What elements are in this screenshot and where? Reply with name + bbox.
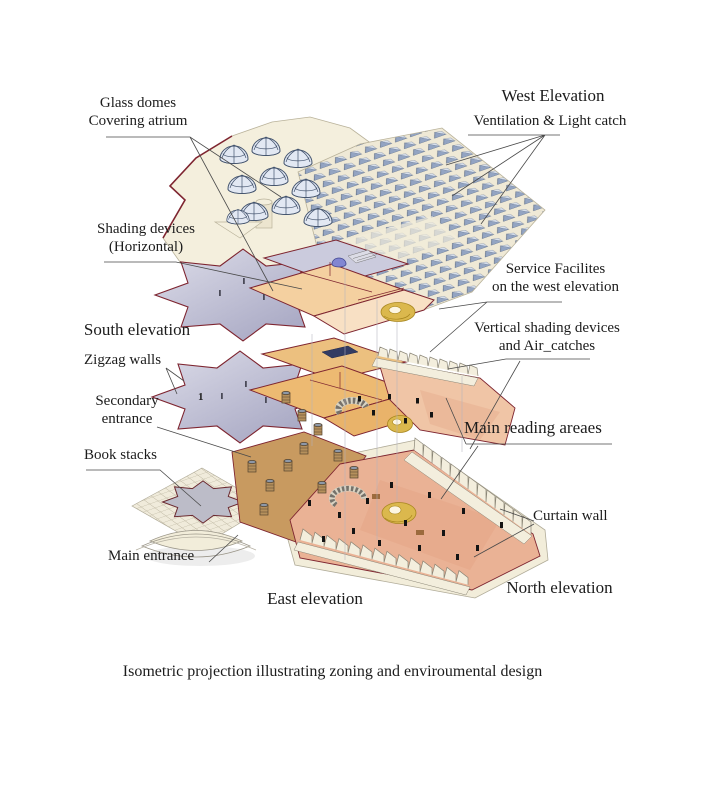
- label-secondary-entrance: Secondary entrance: [88, 392, 166, 429]
- middle-floor-layer: 1: [152, 338, 515, 445]
- gold-ramp-middle: [388, 416, 413, 433]
- label-shading-devices-line1: Shading devices: [76, 220, 216, 238]
- figure-caption: Isometric projection illustrating zoning…: [55, 663, 610, 681]
- label-main-entrance: Main entrance: [108, 547, 223, 565]
- label-south-elevation: South elevation: [76, 320, 198, 341]
- label-zigzag-walls: Zigzag walls: [84, 351, 179, 369]
- label-east-elevation: East elevation: [255, 589, 375, 610]
- isometric-figure: 1: [0, 0, 711, 789]
- label-vertical-shading: Vertical shading devices and Air_catches: [462, 319, 632, 356]
- label-service-facilities-line1: Service Facilites: [478, 260, 633, 278]
- floor-number: 1: [198, 391, 204, 403]
- label-vertical-shading-line2: and Air_catches: [462, 337, 632, 355]
- label-curtain-wall: Curtain wall: [533, 507, 638, 525]
- label-west-elevation: West Elevation: [478, 86, 628, 107]
- label-book-stacks: Book stacks: [84, 446, 179, 464]
- label-secondary-entrance-line1: Secondary: [88, 392, 166, 410]
- label-vertical-shading-line1: Vertical shading devices: [462, 319, 632, 337]
- blue-dome-upper: [332, 258, 346, 267]
- label-secondary-entrance-line2: entrance: [88, 410, 166, 428]
- label-glass-domes-line1: Glass domes: [70, 94, 206, 112]
- label-shading-devices: Shading devices (Horizontal): [76, 220, 216, 257]
- label-service-facilities: Service Facilites on the west elevation: [478, 260, 633, 297]
- label-glass-domes-line2: Covering atrium: [70, 112, 206, 130]
- label-service-facilities-line2: on the west elevation: [478, 278, 633, 296]
- gold-ramp-ground: [382, 503, 416, 524]
- gold-ramp-upper: [381, 303, 415, 322]
- label-shading-devices-line2: (Horizontal): [76, 238, 216, 256]
- zigzag-star-ground: [163, 481, 244, 523]
- label-ventilation-light-catch: Ventilation & Light catch: [455, 112, 645, 130]
- label-glass-domes: Glass domes Covering atrium: [70, 94, 206, 131]
- label-main-reading-areas: Main reading areaes: [464, 418, 629, 439]
- label-north-elevation: North elevation: [497, 578, 622, 599]
- ground-floor-layer: [132, 432, 548, 598]
